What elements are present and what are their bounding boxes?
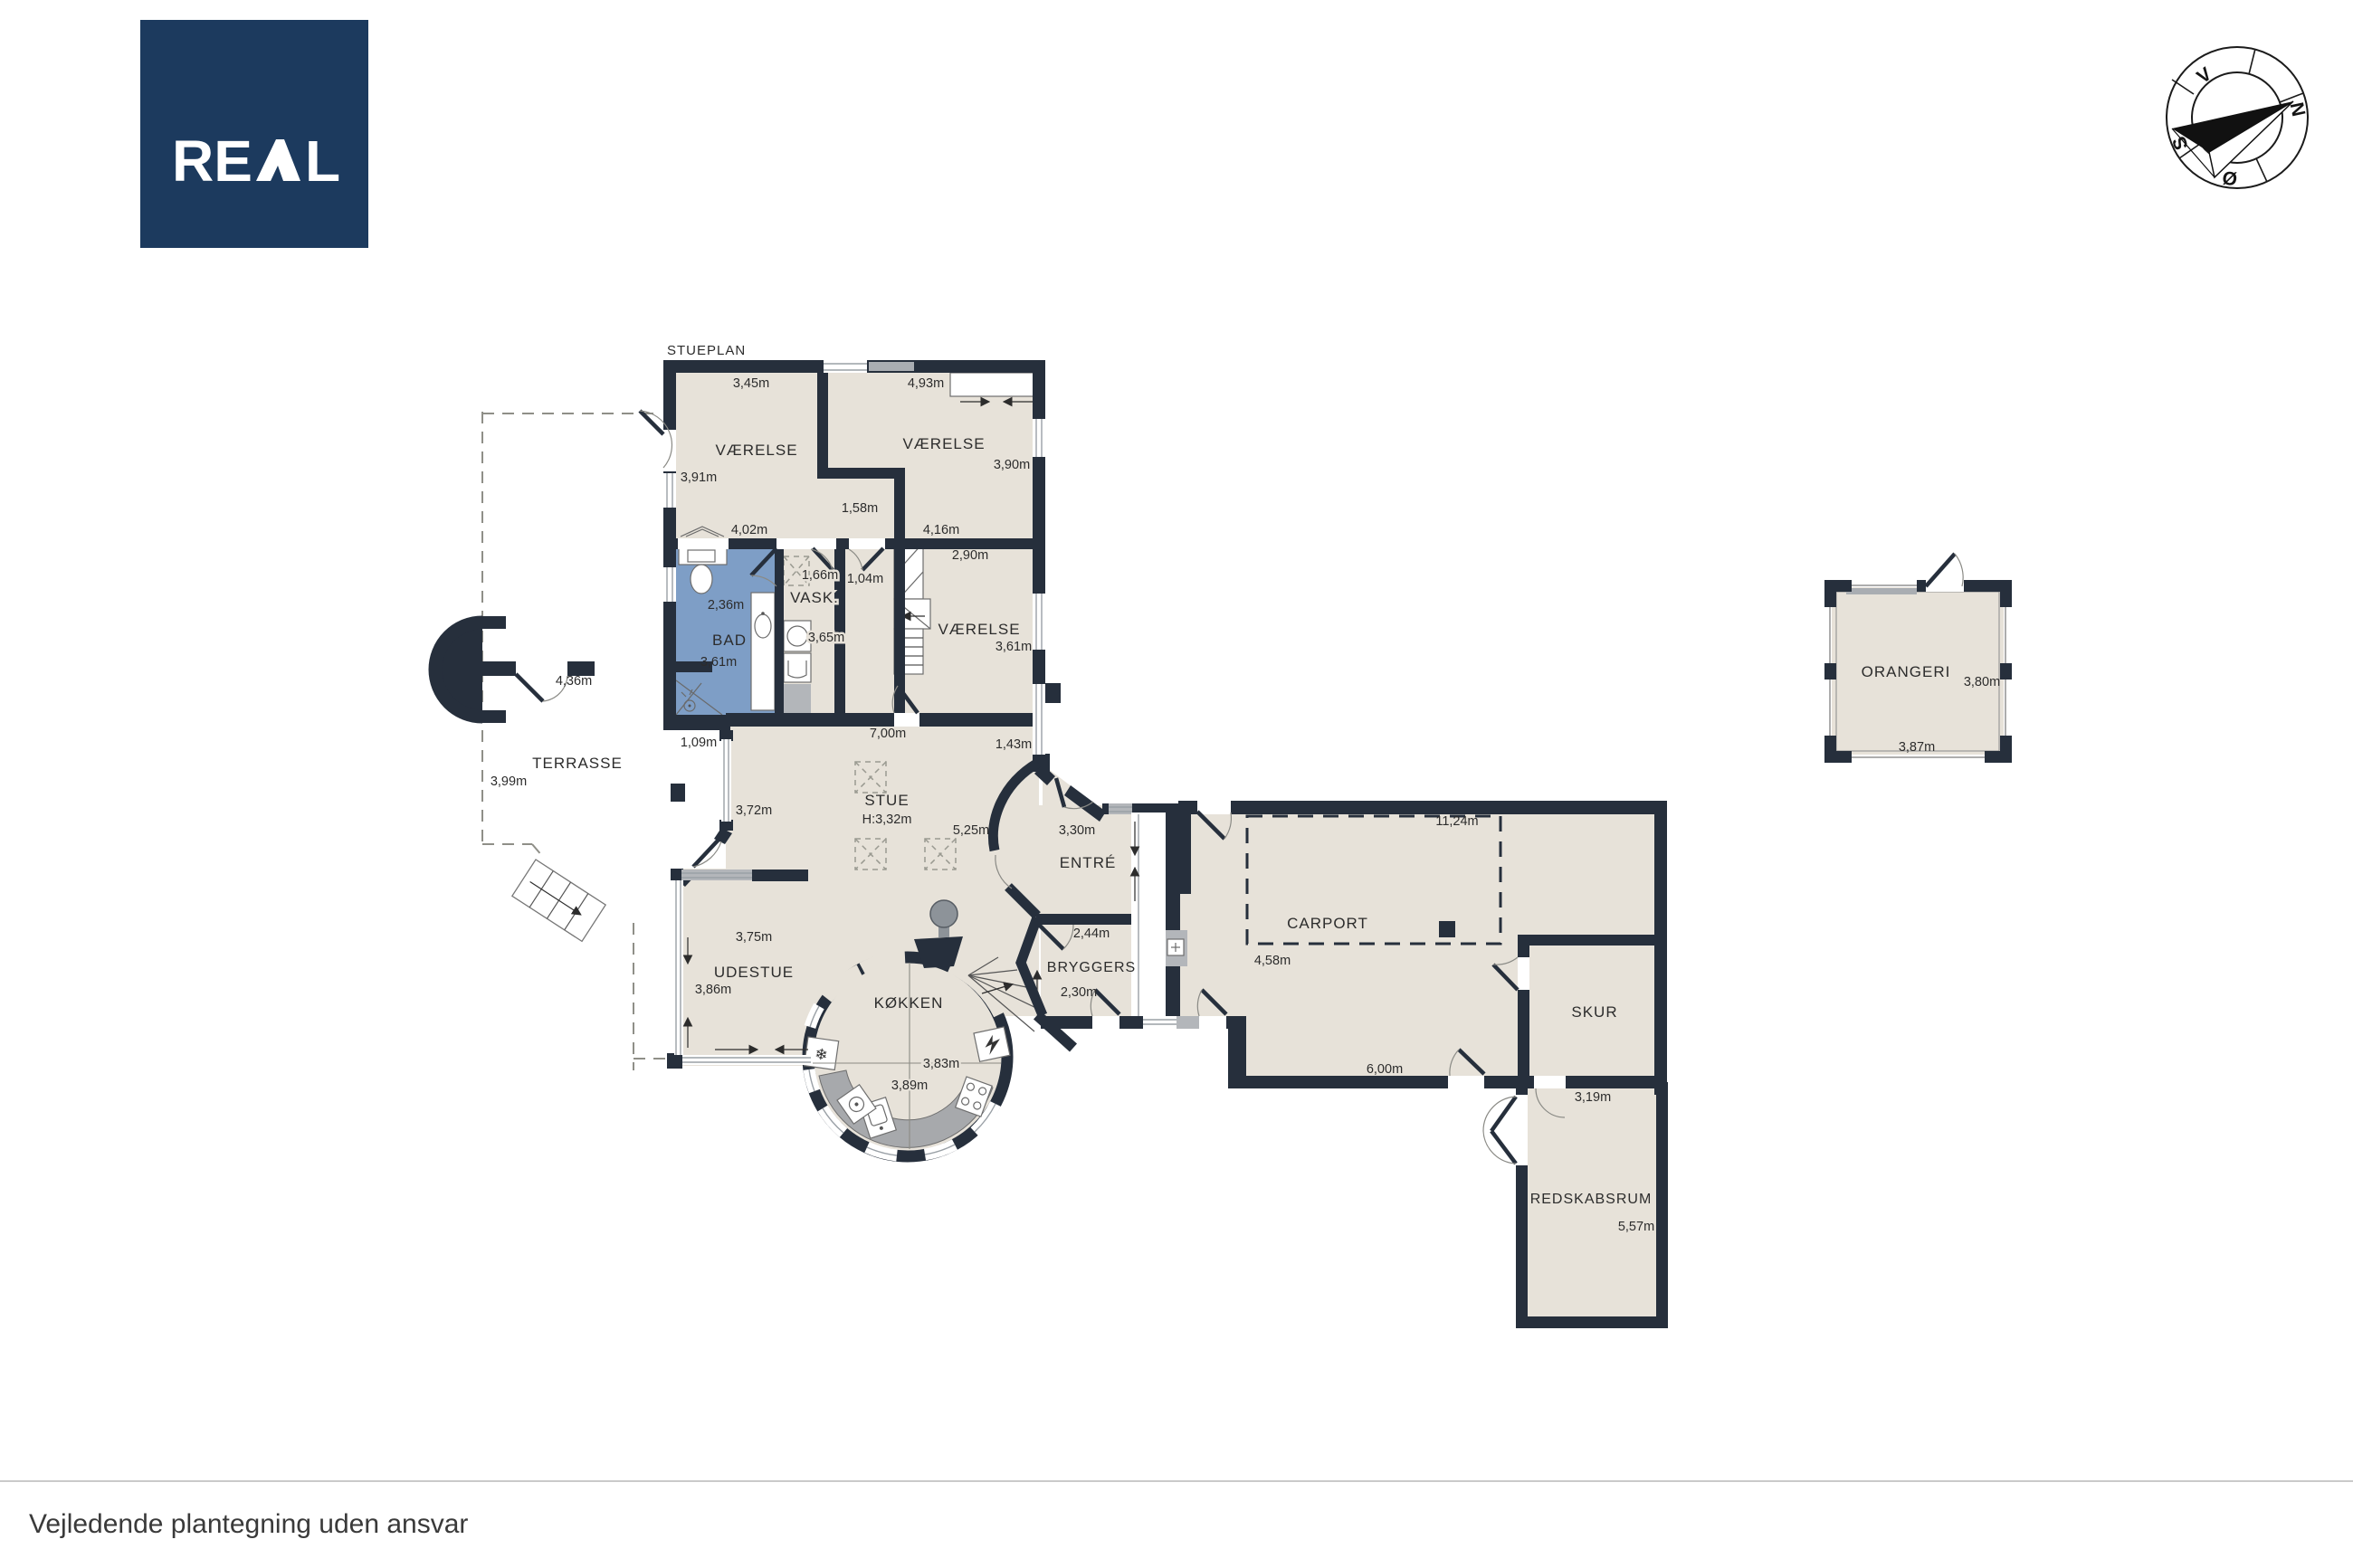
toilet-icon bbox=[688, 550, 715, 594]
orangeri-label: ORANGERI bbox=[1862, 663, 1951, 680]
carport-width: 4,58m bbox=[1254, 954, 1291, 968]
kokken-depth: 3,89m bbox=[891, 1079, 928, 1093]
carport-length: 11,24m bbox=[1435, 814, 1478, 829]
curved-wall bbox=[435, 622, 482, 717]
vaerelse-ne-label: VÆRELSE bbox=[902, 435, 985, 452]
svg-text:❄: ❄ bbox=[814, 1045, 829, 1064]
fireplace-icon bbox=[930, 900, 957, 927]
stue-window: 1,43m bbox=[995, 737, 1032, 752]
vaerelse-mid-depth: 3,61m bbox=[995, 640, 1032, 654]
plan-title: STUEPLAN bbox=[667, 343, 746, 358]
entre-width: 3,30m bbox=[1059, 823, 1095, 838]
vaerelse-nw-width: 3,45m bbox=[733, 376, 769, 391]
stue-label: STUE bbox=[864, 792, 909, 809]
terrace-stairs bbox=[512, 860, 605, 941]
carport-label: CARPORT bbox=[1287, 915, 1368, 932]
carport-post bbox=[1439, 921, 1455, 937]
terrace-post bbox=[671, 784, 685, 802]
stue-depth: 5,25m bbox=[953, 823, 989, 838]
vaerelse-nw-label: VÆRELSE bbox=[715, 442, 797, 459]
stue-ceiling: H:3,32m bbox=[862, 813, 912, 827]
labels: STUEPLAN VÆRELSE 3,45m 3,91m 4,02m VÆREL… bbox=[491, 343, 2000, 1234]
udestue-label: UDESTUE bbox=[714, 964, 794, 981]
bad-width: 2,36m bbox=[708, 598, 744, 613]
vaerelse-mid-wall: 4,16m bbox=[923, 523, 959, 537]
floorplan-page: RE L V N S Ø bbox=[0, 0, 2353, 1568]
footer-disclaimer: Vejledende plantegning uden ansvar bbox=[29, 1509, 468, 1539]
redskabsrum-depth: 5,57m bbox=[1618, 1220, 1654, 1234]
laundry-sink-icon bbox=[784, 653, 811, 682]
washer-icon bbox=[784, 621, 811, 651]
vaerelse-nw-depth: 3,91m bbox=[681, 470, 717, 485]
vask-label: VASK. bbox=[790, 589, 839, 606]
electrical-icon bbox=[974, 1027, 1010, 1061]
floor-plan-drawing: RE L V N S Ø bbox=[0, 0, 2353, 1568]
vaerelse-ne-width: 4,93m bbox=[908, 376, 944, 391]
real-logo: RE L bbox=[140, 20, 368, 248]
skur-label: SKUR bbox=[1571, 1003, 1617, 1021]
terrasse-area bbox=[435, 412, 685, 1070]
kokken-width: 3,83m bbox=[923, 1057, 959, 1071]
bryggers-width: 2,44m bbox=[1073, 927, 1110, 941]
closet-ne bbox=[950, 373, 1034, 396]
bad-label: BAD bbox=[712, 632, 747, 649]
compass-east: Ø bbox=[2221, 166, 2239, 189]
orangeri-depth: 3,80m bbox=[1964, 675, 2000, 689]
terrasse-depth: 3,99m bbox=[491, 774, 527, 789]
vanity-sink-icon bbox=[751, 593, 775, 710]
stue-niche: 1,09m bbox=[681, 736, 717, 750]
terrasse-label: TERRASSE bbox=[532, 755, 623, 772]
bryggers-label: BRYGGERS bbox=[1047, 960, 1136, 975]
bryggers-depth: 2,30m bbox=[1061, 985, 1097, 1000]
compass-west: V bbox=[2193, 63, 2215, 88]
bad-depth: 3,61m bbox=[700, 655, 737, 670]
logo-text-re: RE bbox=[172, 128, 252, 194]
compass-icon: V N S Ø bbox=[2167, 47, 2309, 189]
vask-depth: 3,65m bbox=[808, 631, 844, 645]
hall-strip bbox=[1131, 813, 1166, 1016]
logo-text-l: L bbox=[305, 128, 340, 194]
corridor-width: 1,58m bbox=[842, 501, 878, 516]
stue-side: 3,72m bbox=[736, 803, 772, 818]
udestue-depth: 3,86m bbox=[695, 983, 731, 997]
vaerelse-nw-wall: 4,02m bbox=[731, 523, 767, 537]
corridor-door-b: 1,04m bbox=[847, 572, 883, 586]
udestue-width: 3,75m bbox=[736, 930, 772, 945]
terrasse-gap: 4,36m bbox=[556, 674, 592, 689]
entre-label: ENTRÉ bbox=[1060, 854, 1117, 871]
stue-width: 7,00m bbox=[870, 727, 906, 741]
redskabsrum-width: 3,19m bbox=[1575, 1090, 1611, 1105]
corridor-door-a: 1,66m bbox=[802, 568, 838, 583]
compass-south: S bbox=[2168, 134, 2192, 153]
carport-south: 6,00m bbox=[1367, 1062, 1403, 1077]
orangeri-width: 3,87m bbox=[1899, 740, 1935, 755]
redskabsrum-label: REDSKABSRUM bbox=[1530, 1192, 1653, 1207]
vaerelse-mid-width: 2,90m bbox=[952, 548, 988, 563]
kokken-label: KØKKEN bbox=[874, 994, 944, 1012]
vaerelse-mid-label: VÆRELSE bbox=[938, 621, 1020, 638]
vaerelse-ne-depth: 3,90m bbox=[994, 458, 1030, 472]
